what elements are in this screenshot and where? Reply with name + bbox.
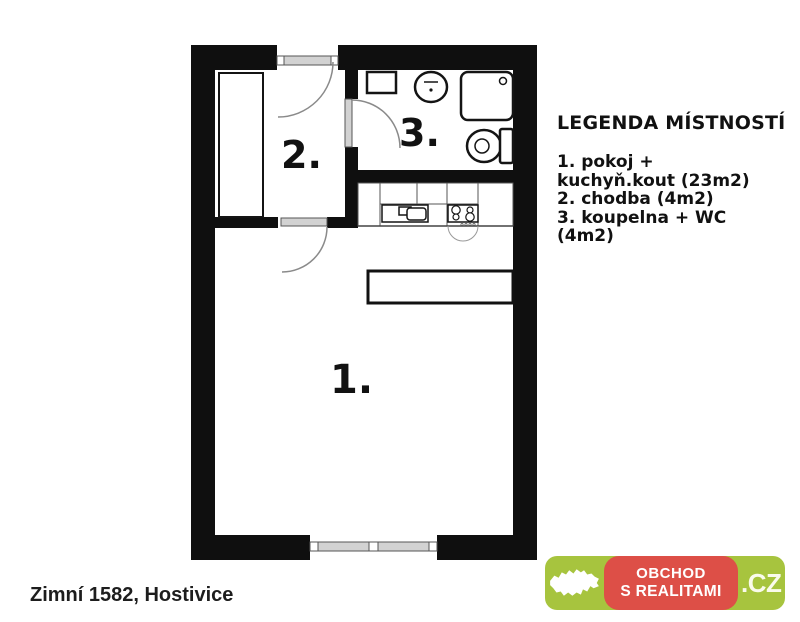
stove-burner-1 xyxy=(452,206,460,214)
legend-line: 2. chodba (4m2) xyxy=(557,190,797,209)
legend-line: 3. koupelna + WC xyxy=(557,209,797,228)
czech-map-icon xyxy=(548,564,601,602)
bathroom-door xyxy=(345,99,352,147)
address-caption: Zimní 1582, Hostivice xyxy=(30,584,233,607)
legend-line: kuchyň.kout (23m2) xyxy=(557,172,797,191)
room-label-3: 3. xyxy=(399,111,440,155)
wall-hall-bottom-jamb xyxy=(327,217,358,228)
legend-title: LEGENDA MÍSTNOSTÍ xyxy=(557,112,797,134)
kitchen-sink-basin xyxy=(407,208,426,220)
wardrobe xyxy=(219,73,263,217)
toilet-bowl xyxy=(467,130,501,162)
bathroom-door-arc xyxy=(352,100,400,148)
stove-burner-4 xyxy=(466,213,474,221)
washing-machine xyxy=(367,72,396,93)
logo-red-panel: OBCHOD S REALITAMI xyxy=(604,556,738,610)
logo-text-line1: OBCHOD xyxy=(636,566,706,583)
stove-burner-3 xyxy=(453,214,459,220)
oven-door-arc xyxy=(448,226,478,241)
wall-bottom-right xyxy=(437,535,537,560)
wall-bottom-left xyxy=(191,535,310,560)
stove-burner-2 xyxy=(467,207,473,213)
toilet-tank xyxy=(500,129,513,163)
wall-left xyxy=(191,45,215,560)
logo-text-line2: S REALITAMI xyxy=(620,583,721,600)
window-cap-middle xyxy=(369,542,378,551)
window-cap-right xyxy=(429,542,437,551)
fixtures xyxy=(219,72,513,217)
kitchen-appliances xyxy=(382,205,478,226)
entry-door-arc xyxy=(278,62,333,117)
counter-table xyxy=(368,271,513,303)
hall-door-arc xyxy=(282,227,327,272)
wall-bath-left-upper xyxy=(345,70,358,99)
wall-bath-bottom xyxy=(345,170,515,183)
wall-top-right xyxy=(338,45,537,70)
floor-plan-drawing: 1. 2. 3. xyxy=(0,0,800,622)
legend: LEGENDA MÍSTNOSTÍ 1. pokoj + kuchyň.kout… xyxy=(557,112,797,246)
stove-knob-4 xyxy=(473,223,475,225)
washbasin-drain xyxy=(429,88,432,91)
window-cap-left xyxy=(310,542,318,551)
agency-logo: OBCHOD S REALITAMI .CZ xyxy=(545,556,785,610)
wall-right xyxy=(513,45,537,560)
floor-plan-page: 1. 2. 3. LEGENDA MÍSTNOSTÍ 1. pokoj + ku… xyxy=(0,0,800,622)
hall-door xyxy=(281,218,327,226)
washbasin xyxy=(415,72,447,102)
entry-door xyxy=(277,56,338,65)
legend-line: 1. pokoj + xyxy=(557,153,797,172)
room-label-2: 2. xyxy=(281,133,322,177)
logo-tld: .CZ xyxy=(741,556,781,610)
entry-door-cap-left xyxy=(277,56,284,65)
legend-line: (4m2) xyxy=(557,227,797,246)
wall-top-left xyxy=(191,45,277,70)
wall-hall-bottom xyxy=(215,217,278,228)
stove-knob-3 xyxy=(469,223,471,225)
stove-knob-1 xyxy=(461,223,463,225)
stove-knob-2 xyxy=(465,223,467,225)
entry-door-cap-right xyxy=(331,56,338,65)
room-label-1: 1. xyxy=(330,357,373,403)
